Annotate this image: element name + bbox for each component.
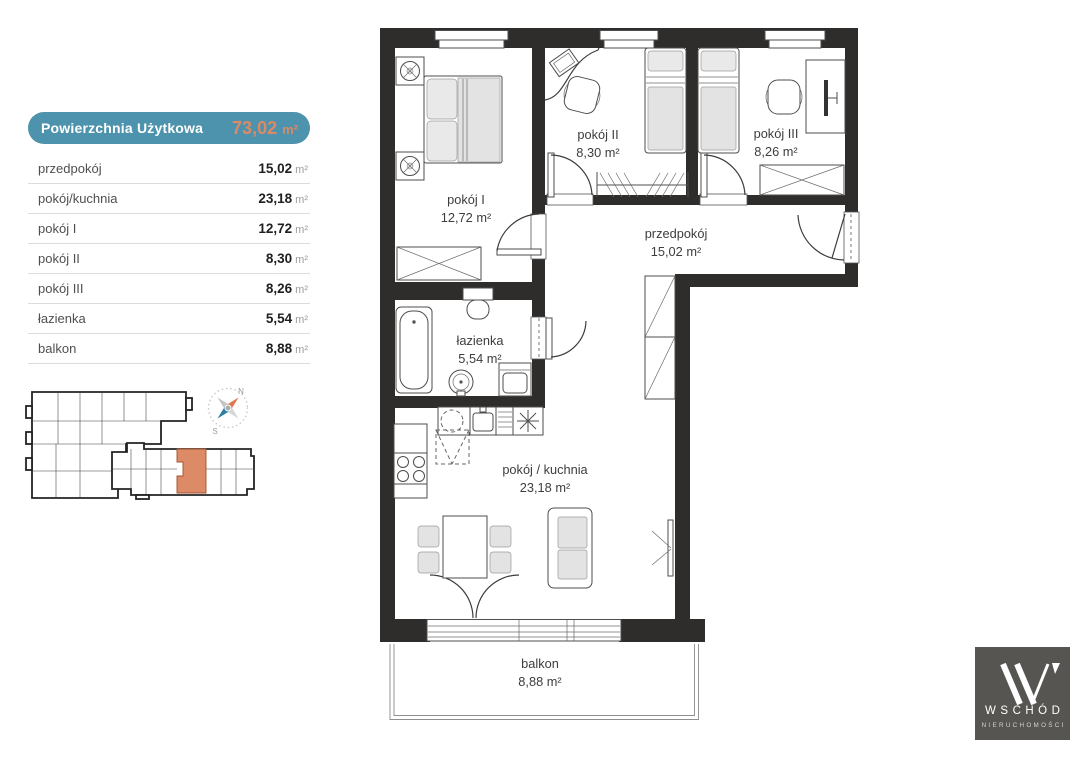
stove-icon: [513, 407, 543, 435]
area-number: 23,18: [258, 191, 292, 206]
room-area-value: 15,02m²: [258, 161, 308, 176]
room-name: przedpokój: [38, 161, 102, 176]
room-area-value: 8,30m²: [266, 251, 308, 266]
compass-south-label: S: [212, 427, 217, 436]
area-unit: m²: [295, 254, 308, 266]
room-name: pokój I: [38, 221, 76, 236]
sink-icon: [449, 370, 473, 396]
area-unit: m²: [295, 344, 308, 356]
window-icon: [435, 31, 508, 49]
table-row: pokój/kuchnia 23,18m²: [28, 184, 310, 214]
room-name: łazienka: [38, 311, 86, 326]
single-bed-icon: [698, 48, 739, 153]
area-unit: m²: [295, 314, 308, 326]
room-pokoj-kuchnia: [394, 407, 673, 588]
room-label: łazienka: [457, 333, 505, 348]
table-row: przedpokój 15,02m²: [28, 154, 310, 184]
room-pokoj-ii: [545, 48, 688, 197]
single-bed-icon: [645, 48, 686, 153]
table-row: pokój I 12,72m²: [28, 214, 310, 244]
table-row: pokój II 8,30m²: [28, 244, 310, 274]
area-unit: m²: [295, 164, 308, 176]
double-bed-icon: [424, 76, 502, 163]
area-unit: m²: [295, 194, 308, 206]
room-area-value: 23,18m²: [258, 191, 308, 206]
window-icon: [600, 31, 658, 49]
table-row: łazienka 5,54m²: [28, 304, 310, 334]
laptop-icon: [549, 49, 578, 77]
door-icon: [497, 214, 546, 259]
room-name: pokój III: [38, 281, 84, 296]
area-rows: przedpokój 15,02m² pokój/kuchnia 23,18m²…: [28, 154, 310, 364]
chair-icon: [766, 80, 802, 114]
open-wardrobe-icon: [597, 172, 688, 197]
room-name: balkon: [38, 341, 76, 356]
building-outline-right: [112, 443, 254, 499]
room-label: pokój / kuchnia: [502, 462, 588, 477]
bathtub-icon: [396, 307, 432, 393]
logo-wordmark: WSCHÓD: [975, 705, 1070, 717]
area-summary-panel: Powierzchnia Użytkowa 73,02 m² przedpokó…: [28, 112, 310, 364]
room-area: 5,54 m²: [458, 351, 502, 366]
nightstand-icon: [396, 152, 424, 180]
balcony-door-icon: [430, 575, 519, 618]
room-label: balkon: [521, 656, 559, 671]
room-label: pokój II: [577, 127, 618, 142]
entrance-door-icon: [798, 212, 859, 263]
room-name: pokój II: [38, 251, 80, 266]
area-summary-title: Powierzchnia Użytkowa: [41, 120, 203, 136]
toilet-icon: [463, 288, 493, 319]
total-area-value: 73,02 m²: [232, 118, 298, 139]
wardrobe-icon: [760, 165, 844, 195]
area-number: 12,72: [258, 221, 292, 236]
washing-machine-icon: [499, 363, 531, 396]
room-area-value: 12,72m²: [258, 221, 308, 236]
area-number: 15,02: [258, 161, 292, 176]
total-area-number: 73,02: [232, 118, 277, 138]
room-area: 12,72 m²: [441, 210, 492, 225]
desk-icon: [806, 60, 845, 133]
room-area: 23,18 m²: [520, 480, 571, 495]
window-icon: [765, 31, 825, 49]
room-label: przedpokój: [645, 226, 708, 241]
room-label: pokój III: [754, 126, 799, 141]
area-number: 8,88: [266, 341, 292, 356]
wardrobe-icon: [397, 247, 481, 280]
company-logo: WSCHÓD NIERUCHOMOŚCI: [975, 647, 1070, 740]
room-area-value: 5,54m²: [266, 311, 308, 326]
balcony-window-icon: [427, 620, 621, 642]
flyer-page: pokój I 12,72 m² pokój II 8,30 m² pokój …: [0, 0, 1085, 761]
tv-icon: [652, 520, 673, 576]
door-icon: [531, 317, 586, 359]
nightstand-icon: [396, 57, 424, 85]
area-unit: m²: [295, 224, 308, 236]
table-row: pokój III 8,26m²: [28, 274, 310, 304]
logo-tagline: NIERUCHOMOŚCI: [975, 722, 1070, 729]
room-area-value: 8,26m²: [266, 281, 308, 296]
area-number: 8,30: [266, 251, 292, 266]
sofa-icon: [548, 508, 592, 588]
dining-table-icon: [418, 516, 511, 578]
area-unit: m²: [295, 284, 308, 296]
site-plan: N S: [26, 387, 254, 499]
kitchen-counter-icon: [438, 407, 543, 435]
room-area: 8,30 m²: [576, 145, 620, 160]
room-label: pokój I: [447, 192, 485, 207]
compass-icon: N S: [209, 387, 248, 436]
total-area-unit: m²: [282, 122, 298, 137]
area-number: 5,54: [266, 311, 292, 326]
room-area: 8,26 m²: [754, 144, 798, 159]
area-summary-header: Powierzchnia Użytkowa 73,02 m²: [28, 112, 310, 144]
room-area: 15,02 m²: [651, 244, 702, 259]
door-icon: [547, 153, 593, 205]
room-name: pokój/kuchnia: [38, 191, 118, 206]
table-row: balkon 8,88m²: [28, 334, 310, 364]
monitor-icon: [824, 80, 828, 116]
room-area: 8,88 m²: [518, 674, 562, 689]
kitchen-cabinets-icon: [394, 424, 427, 498]
hall-wardrobe-icon: [645, 276, 675, 399]
door-icon: [700, 153, 747, 205]
area-number: 8,26: [266, 281, 292, 296]
room-area-value: 8,88m²: [266, 341, 308, 356]
compass-north-label: N: [238, 387, 244, 396]
room-pokoj-i: [396, 57, 502, 280]
room-pokoj-iii: [698, 48, 845, 195]
